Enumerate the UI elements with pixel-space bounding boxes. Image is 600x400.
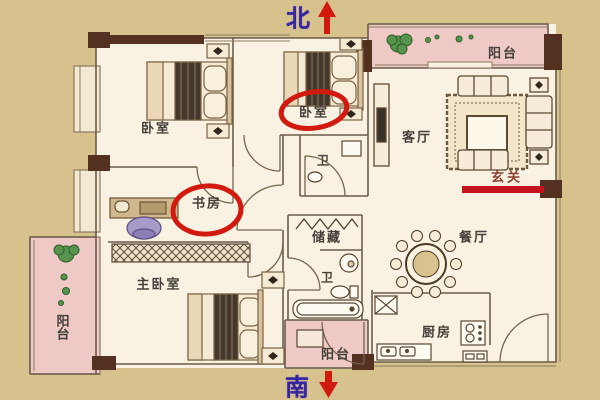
room-label-bathroom-top: 卫	[317, 152, 329, 169]
north-arrow	[318, 1, 336, 34]
room-label-balcony-bottom: 阳台	[321, 344, 351, 363]
wardrobe	[112, 244, 250, 262]
balcony-cabinet	[297, 330, 323, 347]
north-label: 北	[286, 0, 310, 34]
toilet	[331, 286, 349, 298]
floor-plan: 北 南 卧室 卧室 卫 客厅 阳台 玄关 书房 主卧室 阳台 储藏 卫 餐厅 厨…	[0, 0, 600, 400]
room-label-balcony-top-right: 阳台	[488, 43, 518, 62]
sofa-right	[526, 96, 552, 148]
room-label-balcony-left: 阳台	[56, 314, 69, 340]
room-label-living-room: 客厅	[402, 127, 432, 146]
room-label-master-bedroom: 主卧室	[136, 274, 181, 293]
room-label-storage: 储藏	[312, 227, 342, 246]
room-label-entry: 玄关	[491, 167, 523, 186]
room-label-dining-room: 餐厅	[459, 227, 489, 246]
coffee-table	[467, 116, 507, 150]
sofa-top	[458, 76, 508, 96]
room-label-bedroom-top-left: 卧室	[141, 118, 171, 137]
entry-red-line	[462, 186, 544, 193]
room-label-bedroom-top-mid: 卧室	[299, 102, 329, 121]
room-label-kitchen: 厨房	[422, 322, 452, 341]
south-label: 南	[285, 368, 309, 400]
room-label-bathroom-mid: 卫	[321, 269, 333, 286]
south-arrow	[319, 371, 338, 398]
room-label-study: 书房	[192, 193, 222, 212]
